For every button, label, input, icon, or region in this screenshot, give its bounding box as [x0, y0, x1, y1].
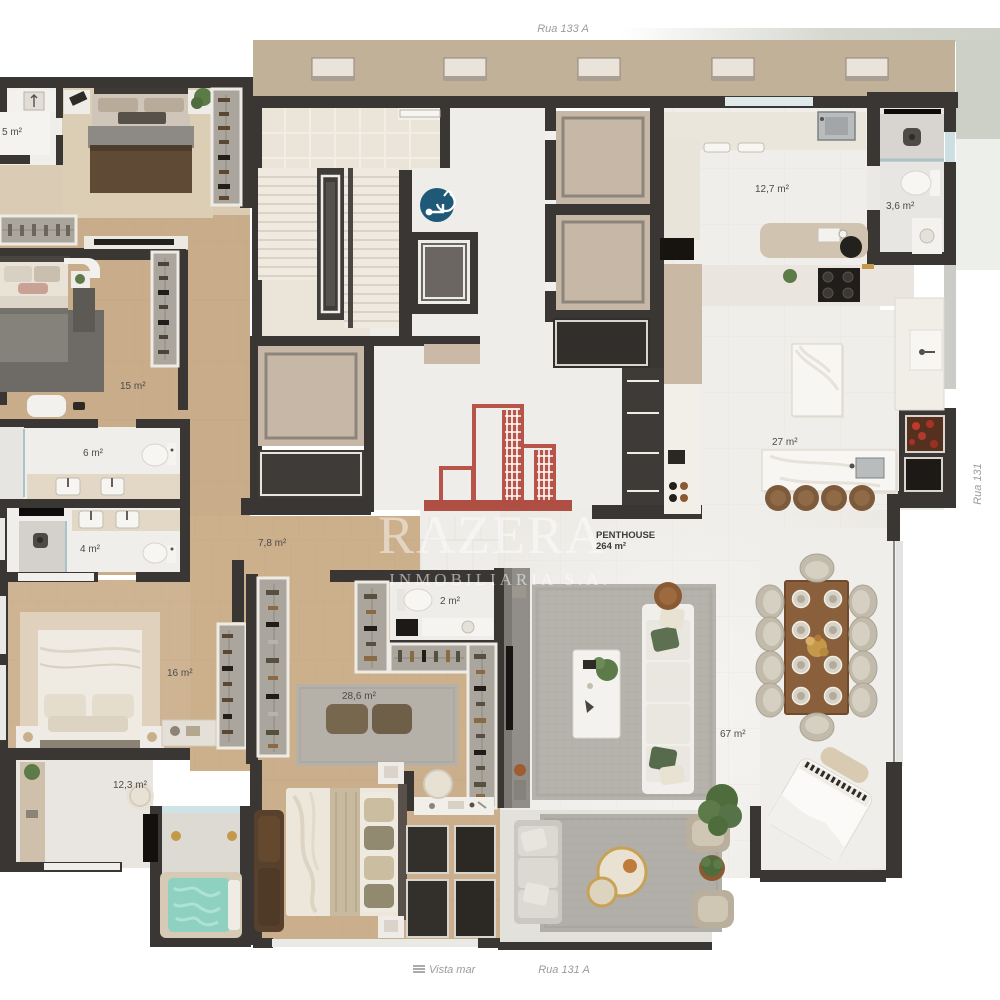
svg-text:12,7 m²: 12,7 m²	[755, 184, 790, 195]
svg-text:Rua 131 A: Rua 131 A	[538, 964, 590, 976]
svg-text:28,6 m²: 28,6 m²	[342, 691, 377, 702]
svg-text:7,8 m²: 7,8 m²	[258, 538, 287, 549]
svg-text:RAZERA: RAZERA	[378, 505, 606, 565]
svg-text:6 m²: 6 m²	[83, 448, 104, 459]
svg-text:27 m²: 27 m²	[772, 437, 798, 448]
svg-text:Rua 131: Rua 131	[972, 463, 984, 505]
svg-text:15 m²: 15 m²	[120, 381, 146, 392]
svg-text:264 m²: 264 m²	[596, 541, 626, 552]
svg-text:4 m²: 4 m²	[80, 544, 101, 555]
svg-text:2 m²: 2 m²	[440, 596, 461, 607]
svg-text:PENTHOUSE: PENTHOUSE	[596, 530, 655, 541]
svg-text:67 m²: 67 m²	[720, 729, 746, 740]
svg-text:5 m²: 5 m²	[2, 127, 23, 138]
svg-text:12,3 m²: 12,3 m²	[113, 780, 148, 791]
svg-text:3,6 m²: 3,6 m²	[886, 201, 915, 212]
svg-text:INMOBILIARIA S.A.: INMOBILIARIA S.A.	[389, 570, 610, 589]
svg-text:16 m²: 16 m²	[167, 668, 193, 679]
svg-text:Vista mar: Vista mar	[429, 964, 477, 976]
svg-text:Rua 133 A: Rua 133 A	[537, 23, 589, 35]
